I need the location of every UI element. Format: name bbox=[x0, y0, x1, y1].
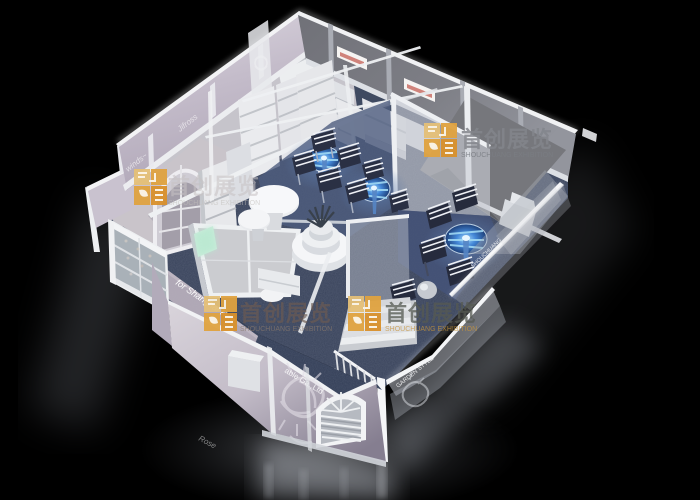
svg-text:首创展览: 首创展览 bbox=[385, 301, 477, 326]
svg-text:首创展览: 首创展览 bbox=[461, 127, 553, 152]
svg-text:SHOUCHUANG EXHIBITION: SHOUCHUANG EXHIBITION bbox=[461, 152, 553, 159]
svg-text:首创展览: 首创展览 bbox=[240, 301, 332, 326]
svg-text:SHOUCHUANG EXHIBITION: SHOUCHUANG EXHIBITION bbox=[168, 200, 260, 207]
svg-text:首创展览: 首创展览 bbox=[168, 174, 260, 199]
svg-text:SHOUCHUANG EXHIBITION: SHOUCHUANG EXHIBITION bbox=[240, 326, 332, 333]
svg-text:SHOUCHUANG EXHIBITION: SHOUCHUANG EXHIBITION bbox=[385, 326, 477, 333]
